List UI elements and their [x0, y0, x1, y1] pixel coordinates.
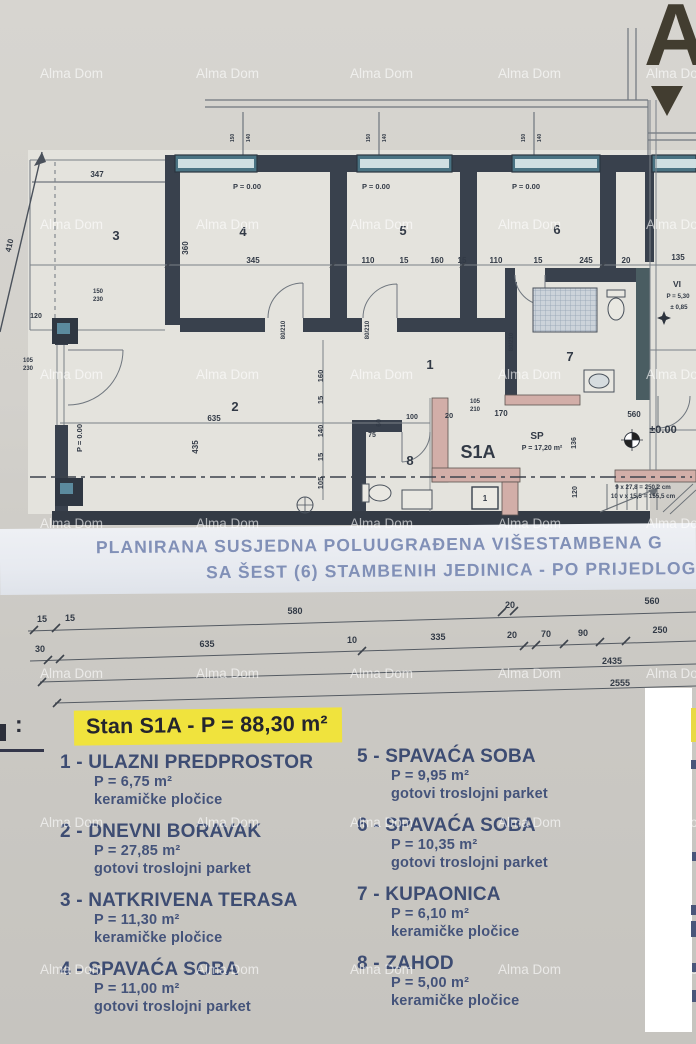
plan-label: 230: [93, 297, 104, 303]
plan-label: 80/210: [281, 320, 287, 339]
plan-label: 230: [23, 366, 34, 372]
shower-tray: [533, 288, 597, 332]
plan-label: 2435: [602, 656, 622, 666]
room-detail: keramičke pločice: [391, 924, 667, 942]
toilet-tank: [362, 484, 369, 502]
room-name: 2 - DNEVNI BORAVAK: [60, 821, 370, 843]
plan-label: 3: [112, 228, 119, 243]
window: [357, 155, 452, 172]
room-detail: P = 11,30 m²: [94, 912, 370, 930]
plan-label: 15: [534, 256, 543, 265]
plan-label: ± 0,85: [670, 304, 688, 311]
plan-label: 15: [37, 614, 47, 624]
plan-label: 2555: [610, 678, 630, 688]
plan-label: 15: [316, 396, 325, 404]
plan-label: 170: [494, 409, 508, 418]
plan-label: 635: [207, 414, 221, 423]
site-dimension-lines: [28, 612, 696, 703]
plan-label: 5: [399, 223, 406, 238]
plan-label: 10 v x 15,5 = 155,5 cm: [611, 493, 676, 500]
plan-label: P = 17,20 m²: [522, 445, 563, 452]
room-detail: P = 27,85 m²: [94, 843, 370, 861]
plan-label: 2: [231, 399, 238, 414]
edge-fragment-text: [691, 921, 696, 937]
legend-item: 4 - SPAVAĆA SOBAP = 11,00 m²gotovi trosl…: [60, 959, 370, 1016]
legend-item: 2 - DNEVNI BORAVAKP = 27,85 m²gotovi tro…: [60, 821, 370, 878]
plan-label: 150: [366, 134, 372, 143]
legend-column-left: 1 - ULAZNI PREDPROSTORP = 6,75 m²keramič…: [60, 752, 370, 1028]
edge-fragment-text: [692, 963, 696, 972]
plan-label: 6: [553, 222, 560, 237]
caption-line-1: PLANIRANA SUSJEDNA POLUUGRAĐENA VIŠESTAM…: [96, 532, 663, 558]
cutoff-underline: [0, 749, 44, 752]
plan-label: 20: [622, 256, 631, 265]
cutoff-colon: :: [15, 711, 23, 738]
room-detail: P = 6,10 m²: [391, 906, 667, 924]
plan-label: 150: [521, 134, 527, 143]
plan-label: 60: [376, 419, 383, 427]
plan-label: 140: [382, 134, 388, 143]
toilet-tank: [607, 290, 625, 297]
plan-label: 120: [30, 313, 42, 320]
plan-label: 105: [23, 358, 34, 364]
plan-label: 80/210: [365, 320, 371, 339]
plan-label: 347: [90, 170, 104, 179]
legend-item: 8 - ZAHODP = 5,00 m²keramičke pločice: [357, 953, 667, 1010]
plan-label: 100: [406, 414, 418, 421]
plan-label: 435: [191, 440, 200, 454]
plan-label: 7: [566, 349, 573, 364]
plan-label: 140: [316, 425, 325, 438]
plan-label: 150: [230, 134, 236, 143]
room-detail: gotovi troslojni parket: [94, 861, 370, 879]
plan-label: 136: [571, 437, 578, 449]
plan-label: 580: [287, 606, 302, 616]
plan-label: 90: [578, 628, 588, 638]
legend-item: 6 - SPAVAĆA SOBAP = 10,35 m²gotovi trosl…: [357, 815, 667, 872]
floor-plan-svg: 45631278P = 0.00P = 0.00P = 0.00P = 0.00…: [0, 0, 696, 712]
plan-label: SP: [530, 431, 544, 442]
room-name: 5 - SPAVAĆA SOBA: [357, 746, 667, 768]
plan-label: ±0.00: [649, 424, 676, 436]
plan-label: 560: [627, 410, 641, 419]
edge-fragment-text: [692, 990, 696, 1002]
window: [175, 155, 257, 172]
plan-label: 335: [430, 632, 445, 642]
plan-label: 250: [652, 625, 667, 635]
room-name: 3 - NATKRIVENA TERASA: [60, 890, 370, 912]
room-name: 4 - SPAVAĆA SOBA: [60, 959, 370, 981]
plan-label: 150: [93, 289, 104, 295]
plan-label: 70: [541, 629, 551, 639]
plan-label: 560: [644, 596, 659, 606]
edge-fragment-text: [691, 760, 696, 769]
plan-label: P = 5,30: [666, 293, 690, 300]
room-detail: gotovi troslojni parket: [391, 786, 667, 804]
plan-label: P = 0.00: [75, 424, 84, 452]
room-detail: keramičke pločice: [94, 930, 370, 948]
plan-label: 1: [483, 494, 488, 503]
edge-fragment-text: [691, 905, 696, 915]
room-detail: P = 5,00 m²: [391, 975, 667, 993]
plan-label: 15: [458, 256, 467, 265]
room-detail: P = 9,95 m²: [391, 768, 667, 786]
plan-label: VI: [673, 279, 681, 289]
room-detail: gotovi troslojni parket: [391, 855, 667, 873]
plan-label: 635: [199, 639, 214, 649]
plan-label: 110: [362, 256, 375, 265]
white-redaction-rect: [645, 688, 692, 1032]
plan-label: S1A: [460, 442, 495, 462]
sheet-corner-letter: A: [644, 0, 696, 86]
plan-label: 140: [246, 134, 252, 143]
plan-label: 20: [507, 630, 517, 640]
legend-section: Stan S1A - P = 88,30 m² 1 - ULAZNI PREDP…: [0, 700, 696, 1044]
plan-label: 120: [572, 486, 579, 498]
plan-label: 10: [347, 635, 357, 645]
plan-label: 110: [490, 256, 503, 265]
plan-label: P = 0.00: [233, 182, 261, 191]
plan-label: 135: [671, 253, 685, 262]
legend-item: 7 - KUPAONICAP = 6,10 m²keramičke pločic…: [357, 884, 667, 941]
plan-label: 245: [579, 256, 593, 265]
plan-label: 410: [4, 237, 16, 253]
room-detail: P = 6,75 m²: [94, 774, 370, 792]
legend-item: 5 - SPAVAĆA SOBAP = 9,95 m²gotovi troslo…: [357, 746, 667, 803]
room-detail: P = 11,00 m²: [94, 981, 370, 999]
toilet-bowl: [369, 485, 391, 501]
room-name: 8 - ZAHOD: [357, 953, 667, 975]
plan-label: 105: [316, 477, 325, 490]
caption-line-2: SA ŠEST (6) STAMBENIH JEDINICA - PO PRIJ…: [206, 558, 696, 584]
scanned-floor-plan-page: { "watermark": { "text": "Alma Dom", "ro…: [0, 0, 696, 1044]
room-detail: keramičke pločice: [94, 792, 370, 810]
room-detail: gotovi troslojni parket: [94, 999, 370, 1017]
plan-label: 30: [35, 644, 45, 654]
plan-label: 105: [470, 399, 481, 405]
window: [512, 155, 600, 172]
plan-label: 80/210: [509, 332, 515, 351]
room-name: 7 - KUPAONICA: [357, 884, 667, 906]
plan-label: 8: [406, 453, 413, 468]
plan-label: 345: [246, 256, 260, 265]
plan-label: 160: [430, 256, 444, 265]
window: [652, 155, 696, 172]
plan-label: 1: [426, 357, 433, 372]
sink: [402, 490, 432, 509]
plan-label: 4: [239, 224, 247, 239]
plan-label: 160: [316, 370, 325, 383]
legend-column-right: 5 - SPAVAĆA SOBAP = 9,95 m²gotovi troslo…: [357, 746, 667, 1022]
plan-label: 360: [181, 241, 190, 255]
plan-label: 15: [65, 613, 75, 623]
legend-item: 3 - NATKRIVENA TERASAP = 11,30 m²keramič…: [60, 890, 370, 947]
plan-label: 75: [368, 432, 376, 439]
caption-band: PLANIRANA SUSJEDNA POLUUGRAĐENA VIŠESTAM…: [0, 523, 696, 595]
plan-label: 20: [445, 411, 453, 420]
plan-label: P = 0.00: [362, 182, 390, 191]
room-detail: keramičke pločice: [391, 993, 667, 1011]
plan-label: 15: [400, 256, 409, 265]
edge-fragment-text: [692, 852, 696, 861]
room-name: 6 - SPAVAĆA SOBA: [357, 815, 667, 837]
plan-label: 210: [470, 407, 481, 413]
room-detail: P = 10,35 m²: [391, 837, 667, 855]
room-name: 1 - ULAZNI PREDPROSTOR: [60, 752, 370, 774]
edge-fragment-yellow: [691, 708, 696, 742]
cutoff-letter-fragment: [0, 724, 6, 741]
apartment-title: Stan S1A - P = 88,30 m²: [74, 707, 342, 745]
plan-label: 140: [537, 134, 543, 143]
plan-label: 15: [316, 453, 325, 461]
toilet-bowl: [608, 298, 624, 320]
plan-label: 20: [505, 600, 515, 610]
legend-item: 1 - ULAZNI PREDPROSTORP = 6,75 m²keramič…: [60, 752, 370, 809]
plan-label: 9 x 27,8 = 250,2 cm: [615, 484, 671, 491]
plan-label: P = 0.00: [512, 182, 540, 191]
